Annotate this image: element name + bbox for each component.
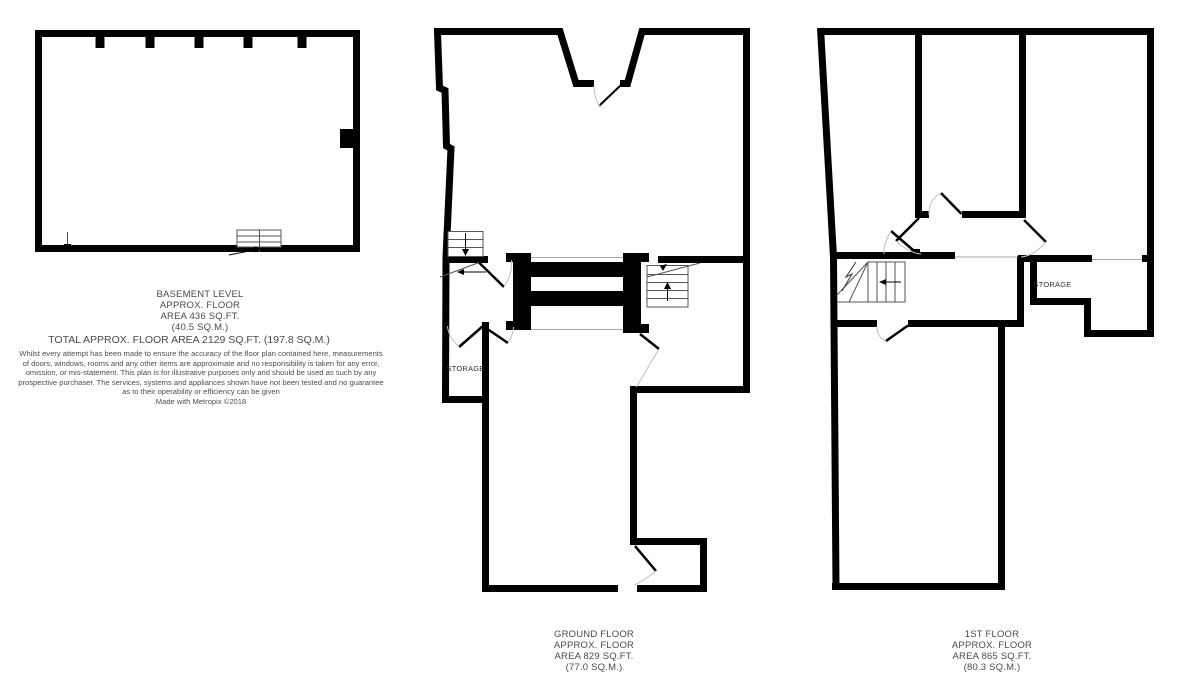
basement-label-line2: APPROX. FLOOR <box>90 300 310 311</box>
basement-door-mark <box>64 232 71 249</box>
disclaimer-credit: Made with Metropix ©2018 <box>0 397 402 407</box>
first-floor-label-line3: AREA 865 SQ.FT. <box>892 651 1092 662</box>
first-rear-room-door <box>877 326 908 342</box>
disclaimer-line5: as to their operability or efficiency ca… <box>0 387 402 397</box>
ground-entrance-door <box>594 85 621 106</box>
ground-floor-label-line1: GROUND FLOOR <box>494 629 694 640</box>
first-hall-door <box>929 193 962 215</box>
ground-hall-door-arc <box>504 260 512 287</box>
basement-label: BASEMENT LEVEL APPROX. FLOOR AREA 436 SQ… <box>90 289 310 333</box>
first-floor-label: 1ST FLOOR APPROX. FLOOR AREA 865 SQ.FT. … <box>892 629 1092 673</box>
ground-stairs-up-icon <box>647 263 700 307</box>
ground-rear-door <box>634 546 656 585</box>
first-stairs-icon <box>837 262 905 302</box>
floorplan-page: BASEMENT LEVEL APPROX. FLOOR AREA 436 SQ… <box>0 0 1200 673</box>
basement-wall-pier <box>340 129 356 148</box>
ground-middle-door <box>637 334 660 387</box>
basement-label-line4: (40.5 SQ.M.) <box>90 322 310 333</box>
ground-floor-label: GROUND FLOOR APPROX. FLOOR AREA 829 SQ.F… <box>494 629 694 673</box>
basement-outer-wall <box>39 34 357 249</box>
first-floor-plan <box>818 28 1154 590</box>
disclaimer-line2: of doors, windows, rooms and any other i… <box>0 359 402 369</box>
ground-storage-double-doors <box>448 326 514 347</box>
first-floor-label-line2: APPROX. FLOOR <box>892 640 1092 651</box>
first-left-wall <box>821 28 837 587</box>
ground-floor-label-line3: AREA 829 SQ.FT. <box>494 651 694 662</box>
first-storage-label: STORAGE <box>1030 281 1075 289</box>
ground-outer-wall-left <box>438 32 595 399</box>
disclaimer: Whilst every attempt has been made to en… <box>0 349 402 407</box>
ground-floor-label-line2: APPROX. FLOOR <box>494 640 694 651</box>
ground-floor-plan <box>438 32 750 589</box>
ground-floor-label-line4: (77.0 SQ.M.) <box>494 662 694 673</box>
basement-plan <box>39 33 357 255</box>
disclaimer-line3: omission, or mis-statement. This plan is… <box>0 368 402 378</box>
disclaimer-line4: prospective purchaser. The services, sys… <box>0 378 402 388</box>
ground-chimney-structure <box>506 253 649 333</box>
first-bedroom1-door <box>896 218 921 254</box>
total-area-label: TOTAL APPROX. FLOOR AREA 2129 SQ.FT. (19… <box>0 334 378 346</box>
basement-label-line1: BASEMENT LEVEL <box>90 289 310 300</box>
basement-label-line3: AREA 436 SQ.FT. <box>90 311 310 322</box>
first-bedroom2-door <box>1021 220 1046 257</box>
first-floor-label-line4: (80.3 SQ.M.) <box>892 662 1092 673</box>
ground-hall-door-leaf <box>479 263 504 288</box>
first-floor-label-line1: 1ST FLOOR <box>892 629 1092 640</box>
disclaimer-line1: Whilst every attempt has been made to en… <box>0 349 402 359</box>
ground-storage-label: STORAGE <box>443 365 488 373</box>
ground-outer-wall-bottom <box>486 322 619 589</box>
